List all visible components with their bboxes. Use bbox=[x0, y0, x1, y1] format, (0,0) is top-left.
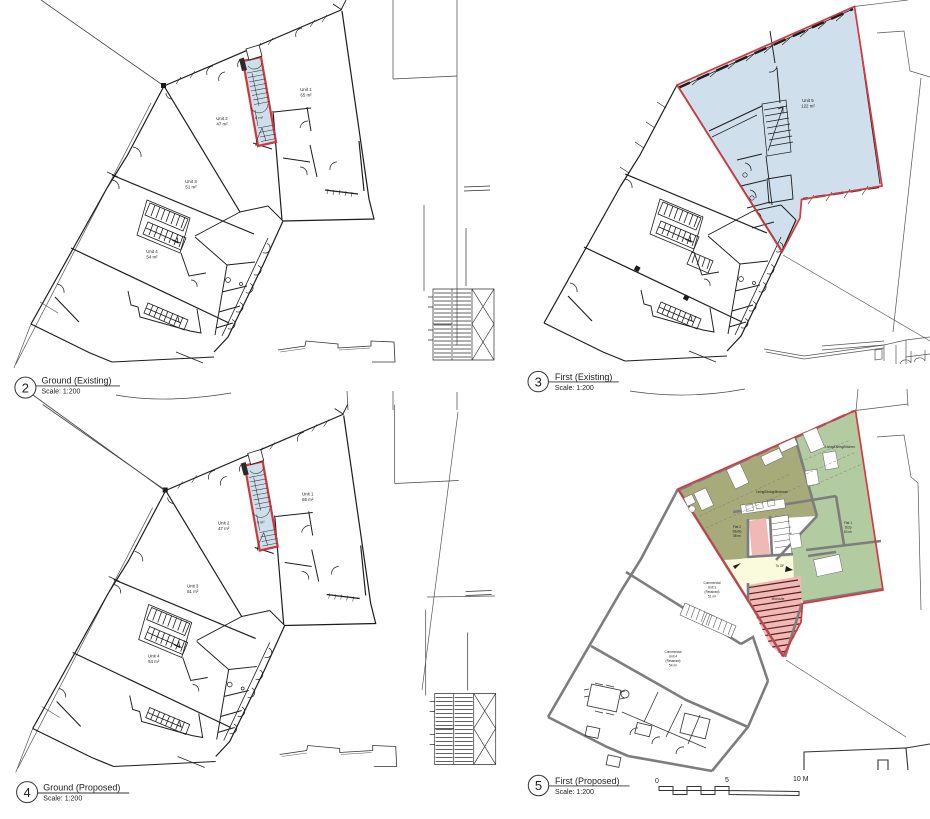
svg-text:Scale: 1:200: Scale: 1:200 bbox=[43, 796, 82, 803]
svg-text:Scale: 1:200: Scale: 1:200 bbox=[555, 789, 594, 796]
svg-text:51 m²: 51 m² bbox=[708, 595, 716, 599]
svg-text:Living/Dining/Kitchen: Living/Dining/Kitchen bbox=[825, 445, 855, 449]
svg-text:4: 4 bbox=[23, 785, 30, 800]
svg-text:Studio: Studio bbox=[732, 530, 741, 534]
svg-text:5: 5 bbox=[535, 778, 542, 793]
svg-text:Flat 1: Flat 1 bbox=[844, 521, 852, 525]
svg-text:5: 5 bbox=[725, 777, 729, 784]
svg-text:10 M: 10 M bbox=[793, 776, 809, 783]
svg-text:Commercial: Commercial bbox=[664, 650, 681, 654]
svg-text:(Retained): (Retained) bbox=[666, 659, 681, 663]
svg-text:2: 2 bbox=[22, 380, 29, 395]
svg-text:Living/Dining/Bedroom: Living/Dining/Bedroom bbox=[756, 490, 788, 494]
svg-text:Commercial: Commercial bbox=[703, 581, 720, 585]
svg-text:122 m²: 122 m² bbox=[801, 104, 815, 109]
svg-text:38 m²: 38 m² bbox=[733, 534, 741, 538]
svg-text:To GF: To GF bbox=[776, 564, 785, 568]
svg-text:Scale: 1:200: Scale: 1:200 bbox=[42, 389, 81, 396]
svg-text:Ground (Existing): Ground (Existing) bbox=[42, 376, 112, 386]
svg-text:Unit 5: Unit 5 bbox=[802, 98, 814, 103]
svg-text:Ground (Proposed): Ground (Proposed) bbox=[43, 783, 120, 793]
svg-text:Unit 4: Unit 4 bbox=[669, 655, 678, 659]
svg-text:First (Existing): First (Existing) bbox=[555, 372, 613, 382]
svg-text:Microsite: Microsite bbox=[772, 597, 785, 601]
svg-text:0: 0 bbox=[655, 778, 659, 785]
svg-text:Unit 3: Unit 3 bbox=[708, 586, 717, 590]
svg-text:(Retained): (Retained) bbox=[705, 590, 720, 594]
svg-text:First (Proposed): First (Proposed) bbox=[555, 776, 620, 786]
svg-text:Scale: 1:200: Scale: 1:200 bbox=[555, 385, 594, 392]
svg-text:54 m²: 54 m² bbox=[669, 664, 677, 668]
svg-text:53 m²: 53 m² bbox=[844, 530, 852, 534]
svg-text:3: 3 bbox=[535, 374, 542, 389]
svg-text:Flat 2: Flat 2 bbox=[733, 525, 741, 529]
svg-text:1b2p: 1b2p bbox=[844, 526, 851, 530]
